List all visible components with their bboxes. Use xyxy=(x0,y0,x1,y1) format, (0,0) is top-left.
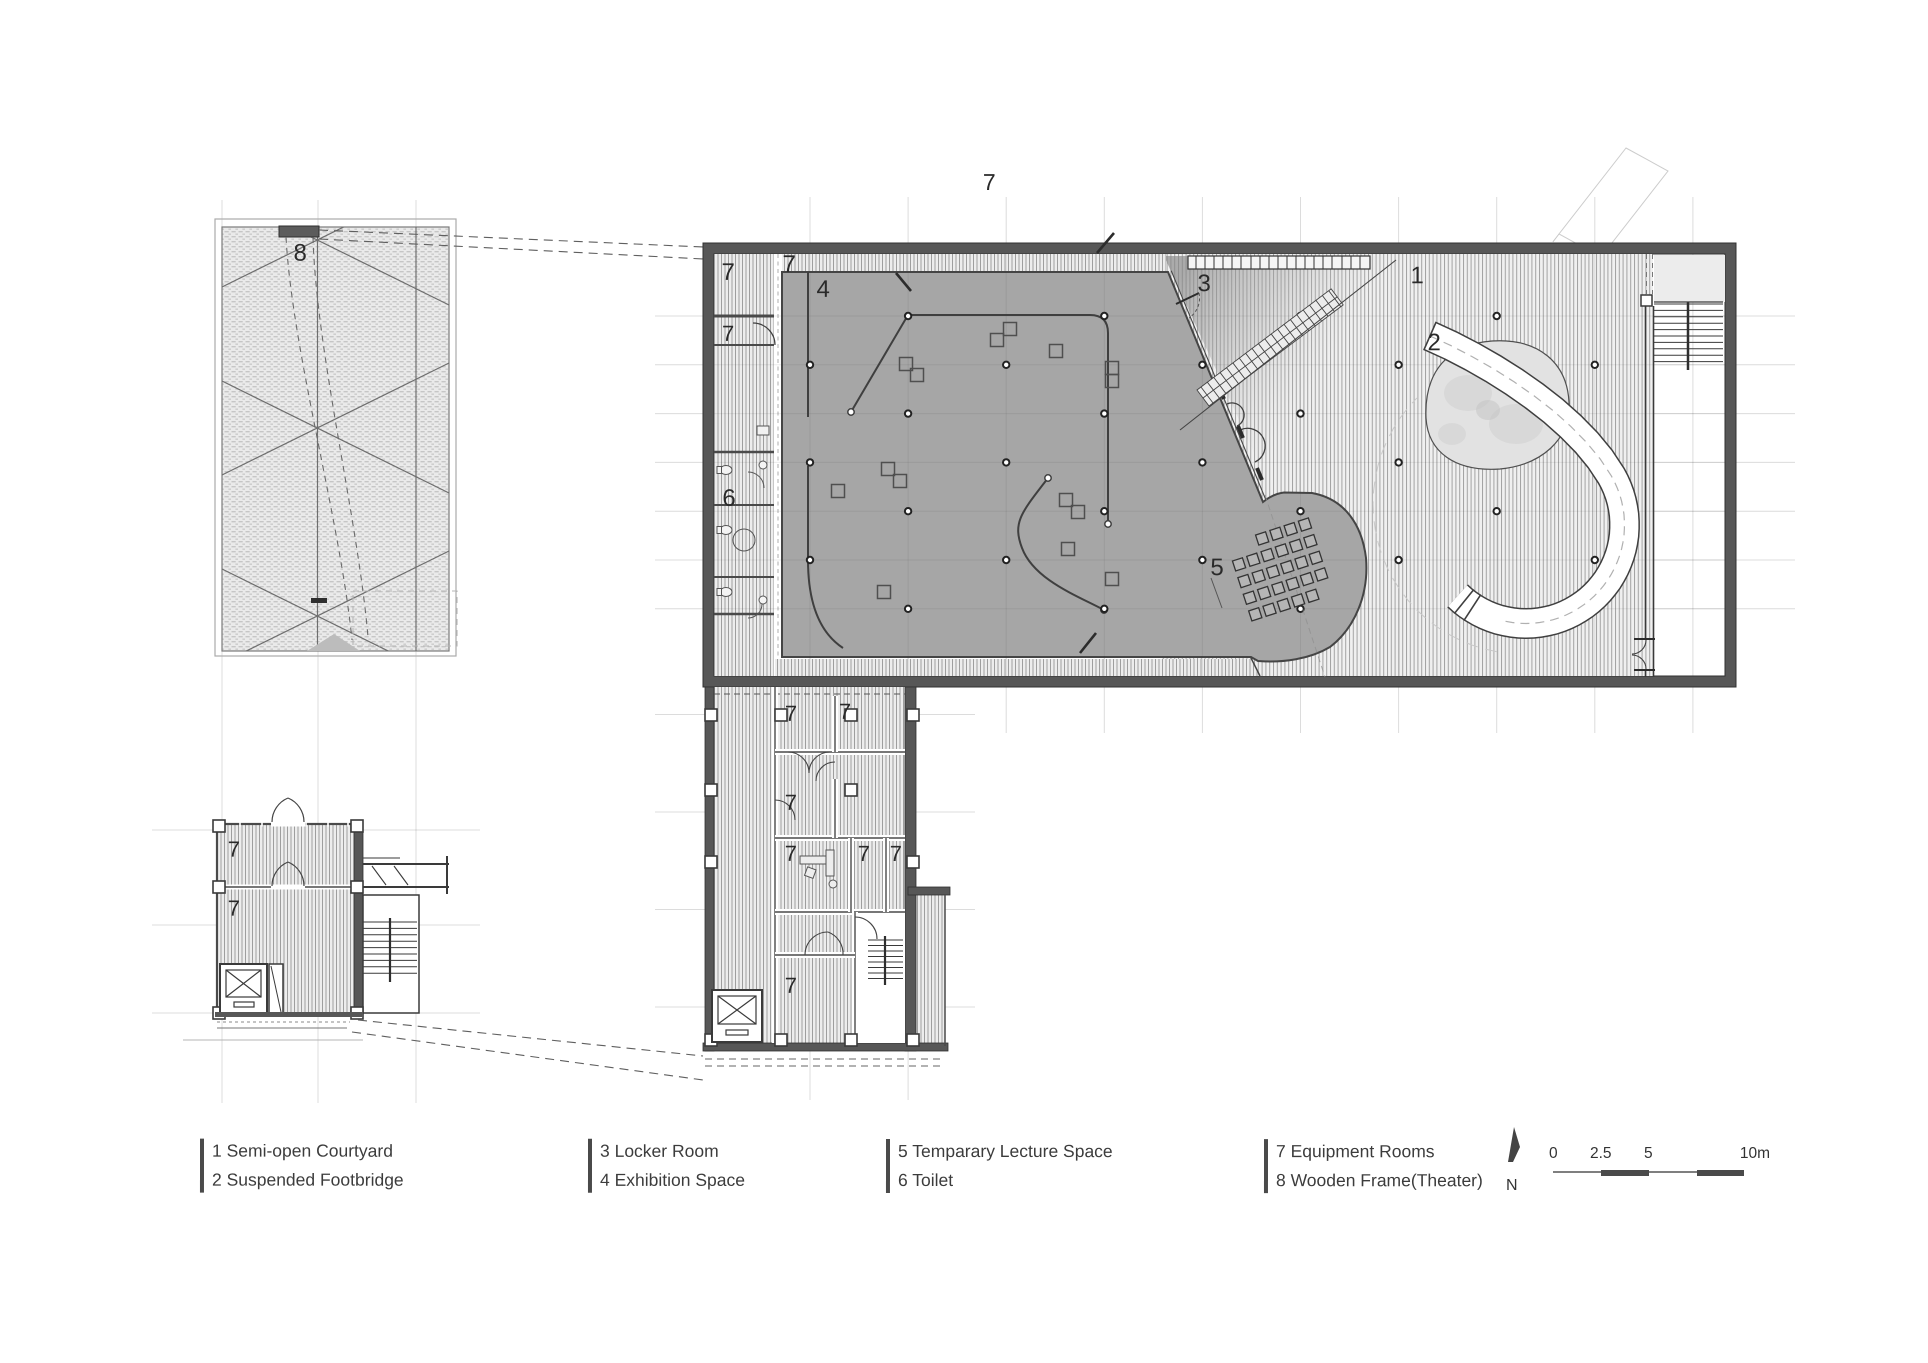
svg-text:2 Suspended Footbridge: 2 Suspended Footbridge xyxy=(212,1170,404,1190)
svg-text:8 Wooden Frame(Theater): 8 Wooden Frame(Theater) xyxy=(1276,1170,1483,1190)
svg-text:7: 7 xyxy=(785,790,797,815)
svg-text:2: 2 xyxy=(1427,329,1440,356)
svg-text:7: 7 xyxy=(983,169,996,195)
svg-text:7: 7 xyxy=(228,896,240,921)
svg-text:3: 3 xyxy=(1198,270,1211,297)
svg-text:7: 7 xyxy=(785,841,797,866)
svg-text:7: 7 xyxy=(783,251,796,278)
svg-text:7: 7 xyxy=(890,841,902,866)
svg-text:7: 7 xyxy=(785,973,797,998)
svg-text:4 Exhibition Space: 4 Exhibition Space xyxy=(600,1170,745,1190)
svg-text:2.5: 2.5 xyxy=(1590,1145,1612,1162)
svg-text:7 Equipment Rooms: 7 Equipment Rooms xyxy=(1276,1141,1435,1161)
svg-text:10m: 10m xyxy=(1740,1145,1770,1162)
svg-text:5: 5 xyxy=(1644,1145,1653,1162)
svg-text:7: 7 xyxy=(722,321,734,346)
svg-text:5 Temparary Lecture Space: 5 Temparary Lecture Space xyxy=(898,1141,1113,1161)
svg-text:7: 7 xyxy=(785,701,797,726)
svg-text:4: 4 xyxy=(817,276,830,303)
svg-text:7: 7 xyxy=(858,841,870,866)
svg-text:7: 7 xyxy=(228,837,240,862)
svg-text:1 Semi-open Courtyard: 1 Semi-open Courtyard xyxy=(212,1141,393,1161)
svg-text:3 Locker Room: 3 Locker Room xyxy=(600,1141,719,1161)
svg-text:7: 7 xyxy=(722,259,735,286)
svg-text:8: 8 xyxy=(294,240,307,267)
svg-text:6: 6 xyxy=(722,485,735,512)
svg-text:6 Toilet: 6 Toilet xyxy=(898,1170,953,1190)
svg-text:5: 5 xyxy=(1210,554,1223,581)
svg-text:0: 0 xyxy=(1549,1145,1558,1162)
svg-text:N: N xyxy=(1506,1177,1518,1194)
svg-text:1: 1 xyxy=(1411,262,1424,289)
svg-text:7: 7 xyxy=(839,699,851,724)
